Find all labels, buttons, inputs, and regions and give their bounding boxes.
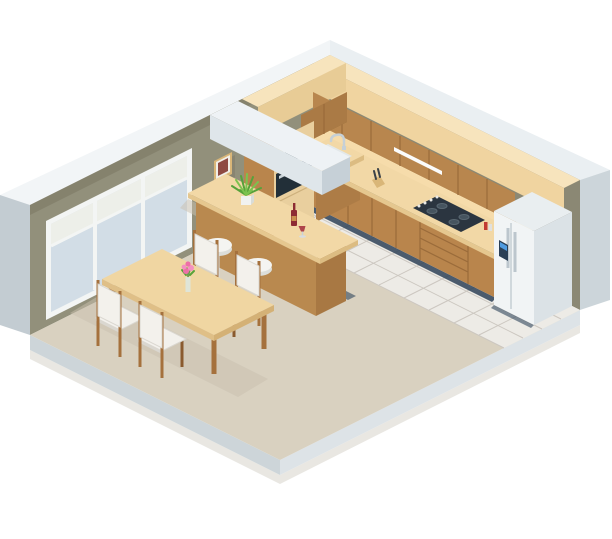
glass-vase <box>186 277 191 292</box>
illustration-stage <box>0 0 612 539</box>
shell-cut-left <box>0 195 30 335</box>
refrigerator <box>491 192 572 328</box>
spice-jar-white <box>489 224 493 231</box>
isometric-kitchen-illustration <box>0 0 612 539</box>
spice-jar-red <box>484 222 488 230</box>
shell-cut-right <box>580 170 610 310</box>
knob-3 <box>430 199 433 202</box>
fridge-side <box>534 212 572 325</box>
burner-4 <box>449 220 459 225</box>
window-mullion-2 <box>93 201 97 290</box>
knob-4 <box>436 196 439 199</box>
wine-bottle-label <box>292 216 297 221</box>
burner-2 <box>459 215 469 220</box>
window-mullion-1 <box>141 177 145 266</box>
knob-2 <box>424 202 427 205</box>
faucet-base <box>342 146 346 150</box>
knob-1 <box>418 205 421 208</box>
wine-bottle-neck <box>293 203 295 210</box>
burner-1 <box>437 204 447 209</box>
chair-leg <box>181 340 184 367</box>
flower <box>185 261 190 266</box>
fridge-handle-right <box>514 232 517 272</box>
wine-glass-foot <box>299 235 306 237</box>
flower <box>182 265 187 270</box>
burner-3 <box>427 209 437 214</box>
plant-pot <box>241 196 251 205</box>
table-leg <box>212 336 217 374</box>
